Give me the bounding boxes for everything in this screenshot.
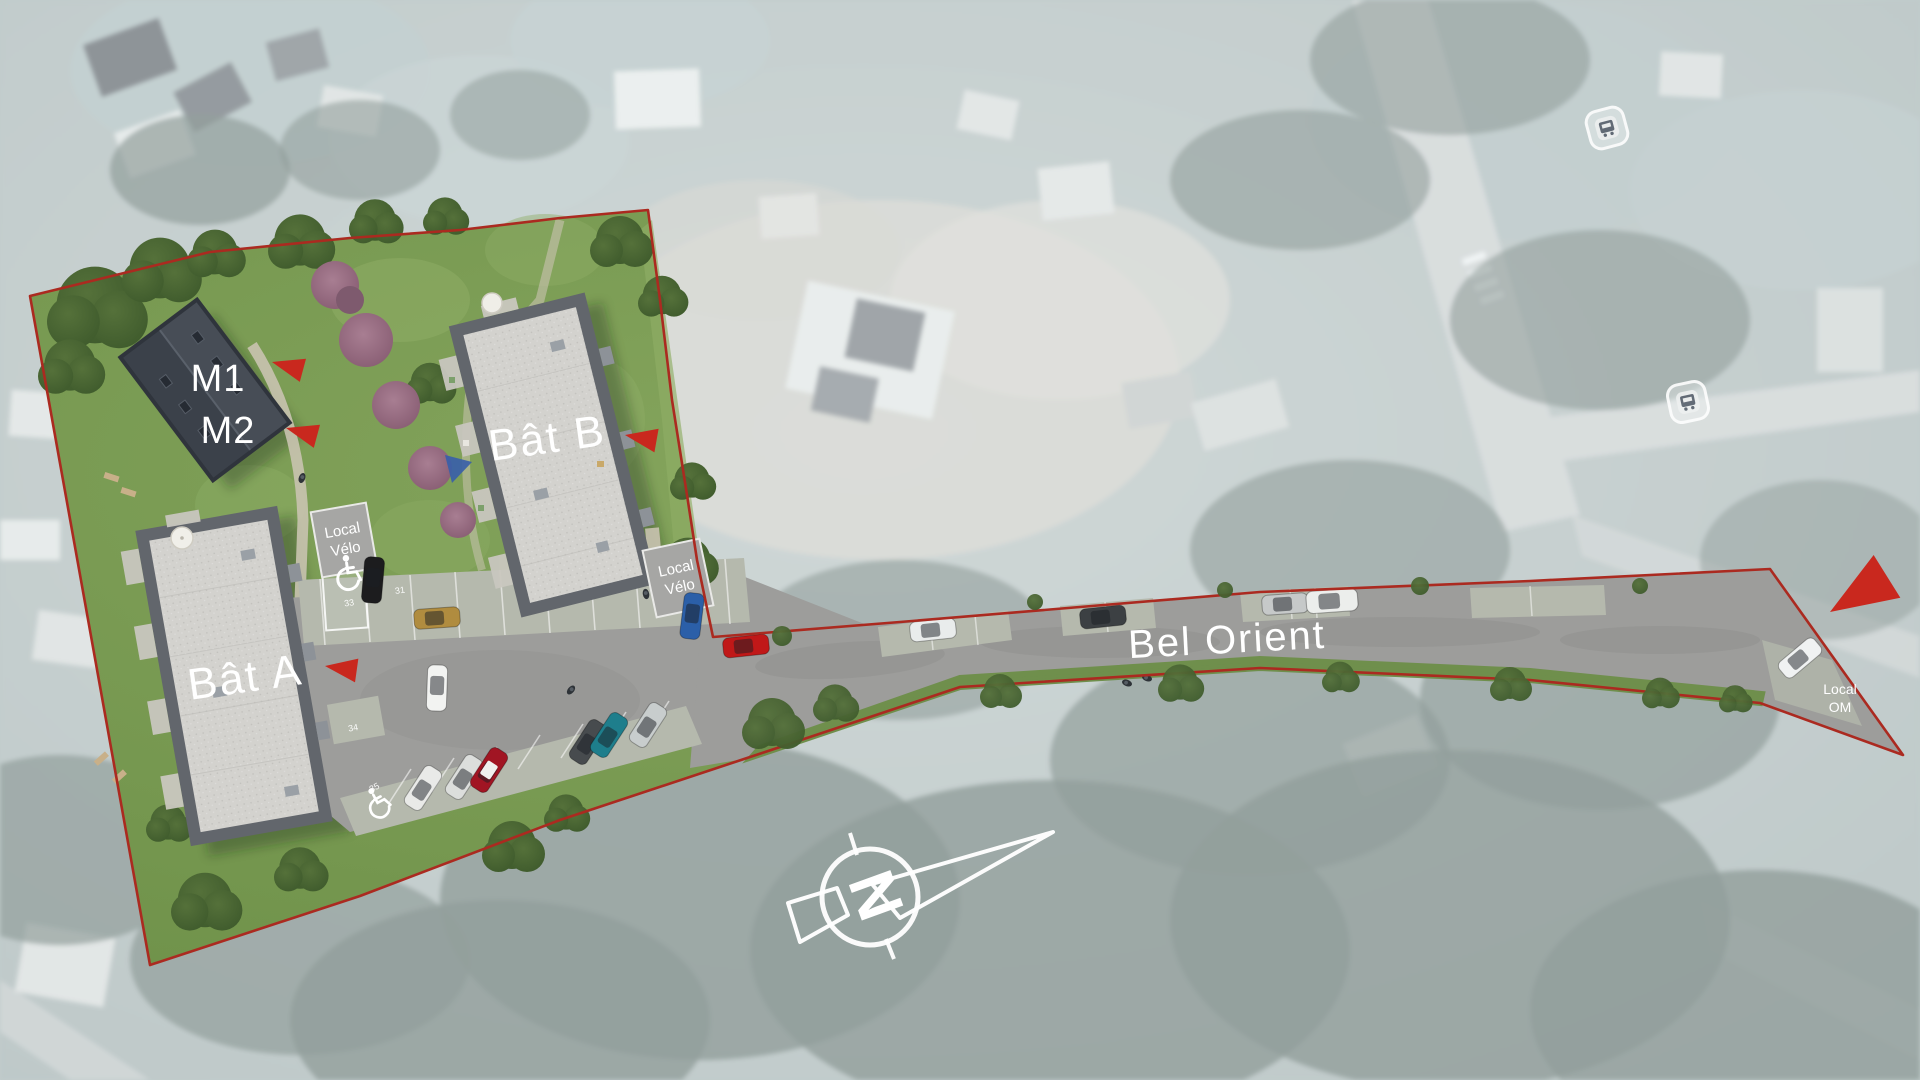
local-om-label-line1: Local [1823, 681, 1856, 697]
car [361, 556, 385, 604]
car [1079, 605, 1127, 630]
entrance-marker-site [1817, 555, 1901, 633]
parking-bay-number: 31 [394, 585, 405, 596]
compass-north-icon: N [788, 832, 1053, 959]
compass-north-label: N [834, 861, 917, 929]
car [413, 606, 460, 629]
parking-bay-number: 34 [347, 722, 359, 734]
van [1306, 588, 1359, 614]
transit-badge-icon [1665, 379, 1710, 424]
car [1261, 592, 1308, 615]
parking-bay-number: 33 [343, 597, 354, 608]
white-umbrella [482, 293, 502, 313]
site-plan-overlay: Local Vélo Local Vélo [0, 0, 1920, 1080]
car [426, 665, 448, 712]
building-label-m1: M1 [191, 358, 246, 400]
site-plan-canvas: Local Vélo Local Vélo [0, 0, 1920, 1080]
building-label-m2: M2 [201, 410, 256, 452]
car [722, 634, 770, 659]
local-om-label-line2: OM [1829, 699, 1852, 715]
transit-badge-icon [1584, 105, 1631, 152]
